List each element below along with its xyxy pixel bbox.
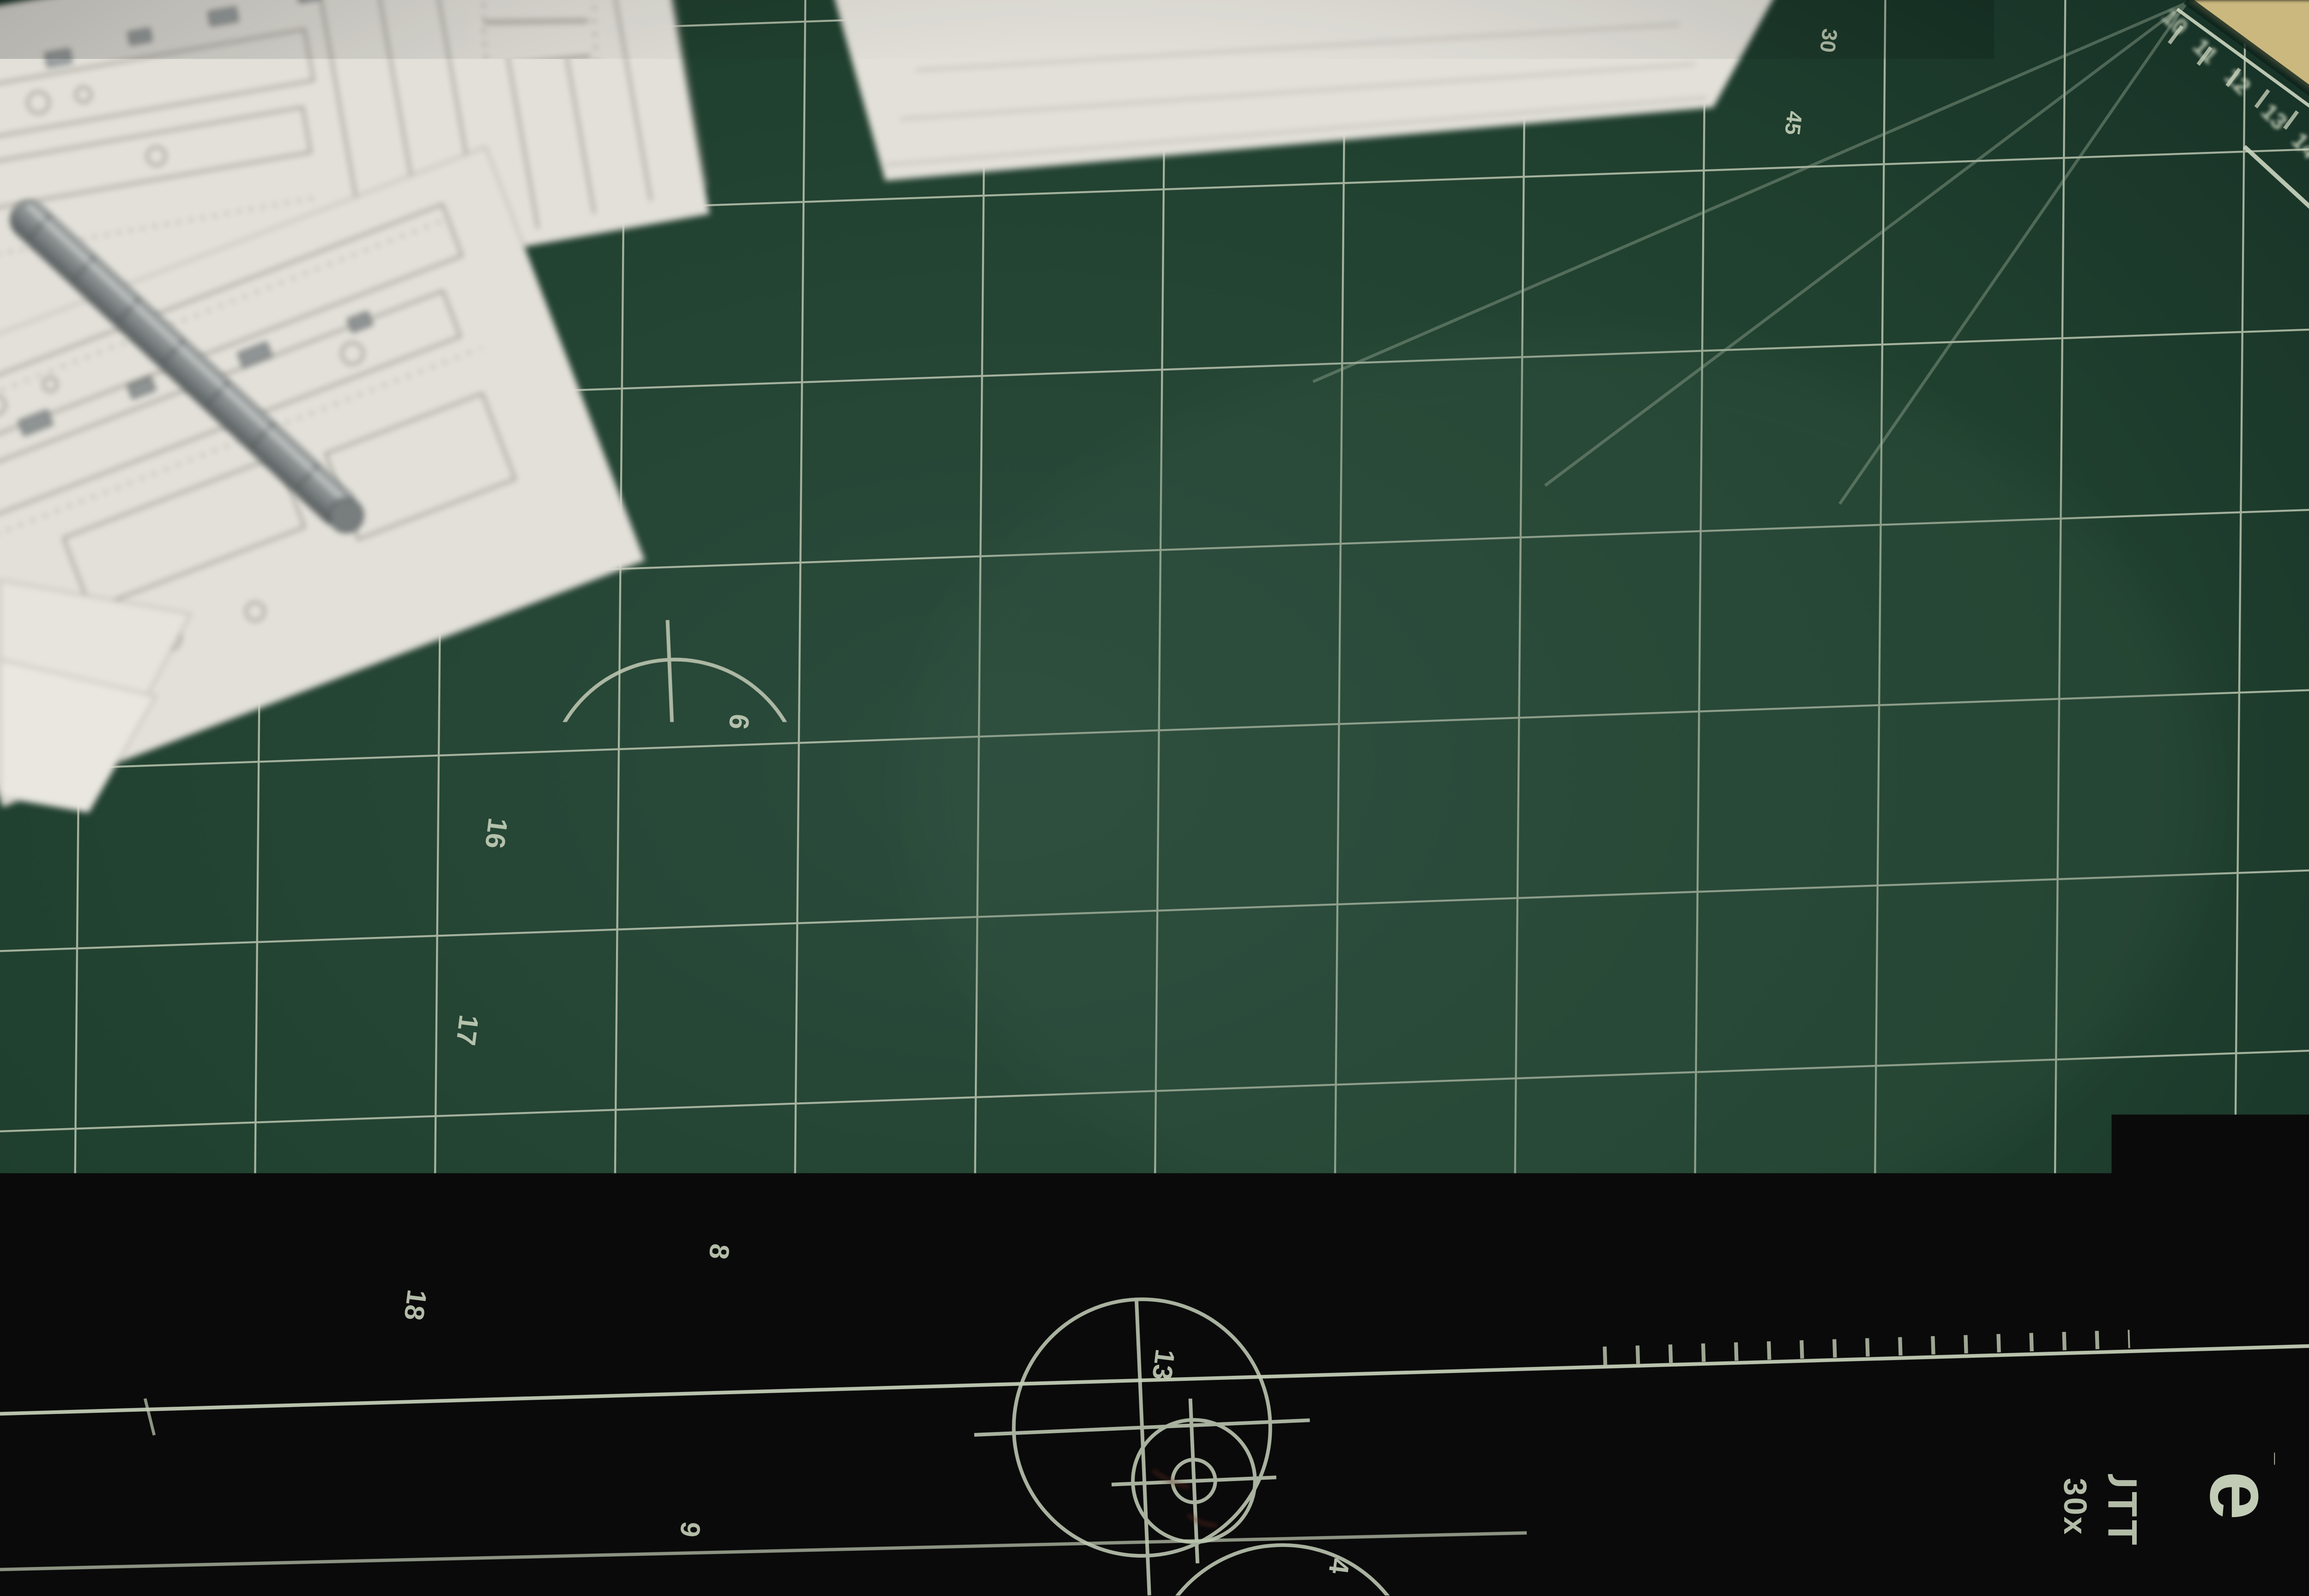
scene-canvas: 16 17 18 6 8 9 13 4 30 45 10 11 12 13 14… — [0, 0, 2309, 1596]
vignette — [0, 0, 2309, 1596]
scene-photo: 16 17 18 6 8 9 13 4 30 45 10 11 12 13 14… — [0, 0, 2309, 1596]
